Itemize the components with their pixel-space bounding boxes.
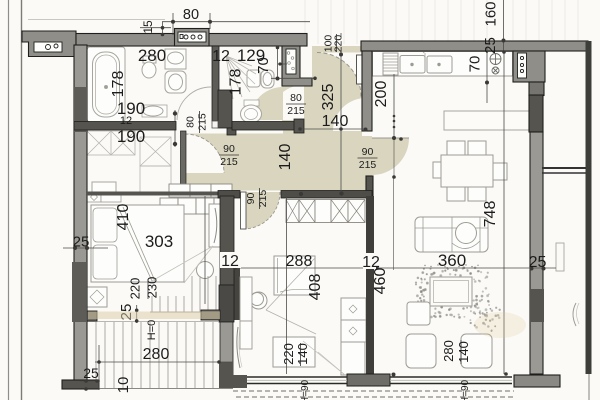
svg-text:15: 15 xyxy=(141,20,155,34)
svg-text:190: 190 xyxy=(117,127,145,146)
svg-text:178: 178 xyxy=(110,71,127,98)
svg-text:80: 80 xyxy=(183,7,199,23)
svg-text:215: 215 xyxy=(359,159,377,171)
svg-text:220: 220 xyxy=(128,278,143,300)
svg-text:H=90: H=90 xyxy=(460,379,471,400)
svg-text:80: 80 xyxy=(290,92,302,104)
svg-text:215: 215 xyxy=(287,105,305,117)
svg-text:90: 90 xyxy=(362,146,374,158)
svg-text:90: 90 xyxy=(245,193,257,205)
svg-text:748: 748 xyxy=(482,201,499,228)
svg-text:12: 12 xyxy=(120,115,132,127)
svg-text:140: 140 xyxy=(322,113,349,130)
svg-text:280: 280 xyxy=(143,346,170,363)
svg-text:325: 325 xyxy=(320,84,337,111)
svg-text:220: 220 xyxy=(281,343,296,365)
svg-text:410: 410 xyxy=(115,204,132,231)
svg-text:140: 140 xyxy=(456,341,471,363)
svg-text:70: 70 xyxy=(467,56,484,73)
svg-text:25: 25 xyxy=(83,365,99,381)
svg-text:280: 280 xyxy=(441,340,456,362)
svg-text:25: 25 xyxy=(529,254,547,271)
svg-text:25: 25 xyxy=(482,37,499,54)
svg-text:10: 10 xyxy=(115,377,132,394)
svg-text:280: 280 xyxy=(138,46,166,65)
svg-text:25: 25 xyxy=(73,234,90,251)
svg-text:288: 288 xyxy=(286,253,313,270)
svg-text:12: 12 xyxy=(212,48,230,65)
svg-text:90: 90 xyxy=(223,143,235,155)
svg-text:360: 360 xyxy=(438,251,466,270)
svg-text:230: 230 xyxy=(145,277,160,299)
svg-text:215: 215 xyxy=(220,156,238,168)
svg-text:215: 215 xyxy=(257,190,269,208)
svg-text:220: 220 xyxy=(333,35,345,53)
svg-text:140: 140 xyxy=(295,343,310,365)
svg-text:160: 160 xyxy=(483,1,500,26)
svg-text:H=0: H=0 xyxy=(146,320,158,341)
svg-text:H=90: H=90 xyxy=(300,379,311,400)
svg-text:408: 408 xyxy=(307,274,324,301)
svg-text:200: 200 xyxy=(373,81,390,108)
svg-text:460: 460 xyxy=(372,268,389,295)
svg-text:178: 178 xyxy=(228,69,245,96)
svg-text:80: 80 xyxy=(185,116,197,128)
svg-text:12: 12 xyxy=(221,253,239,270)
svg-text:215: 215 xyxy=(197,113,209,131)
svg-text:140: 140 xyxy=(277,144,294,171)
svg-text:70: 70 xyxy=(255,57,272,74)
svg-text:303: 303 xyxy=(145,232,173,251)
